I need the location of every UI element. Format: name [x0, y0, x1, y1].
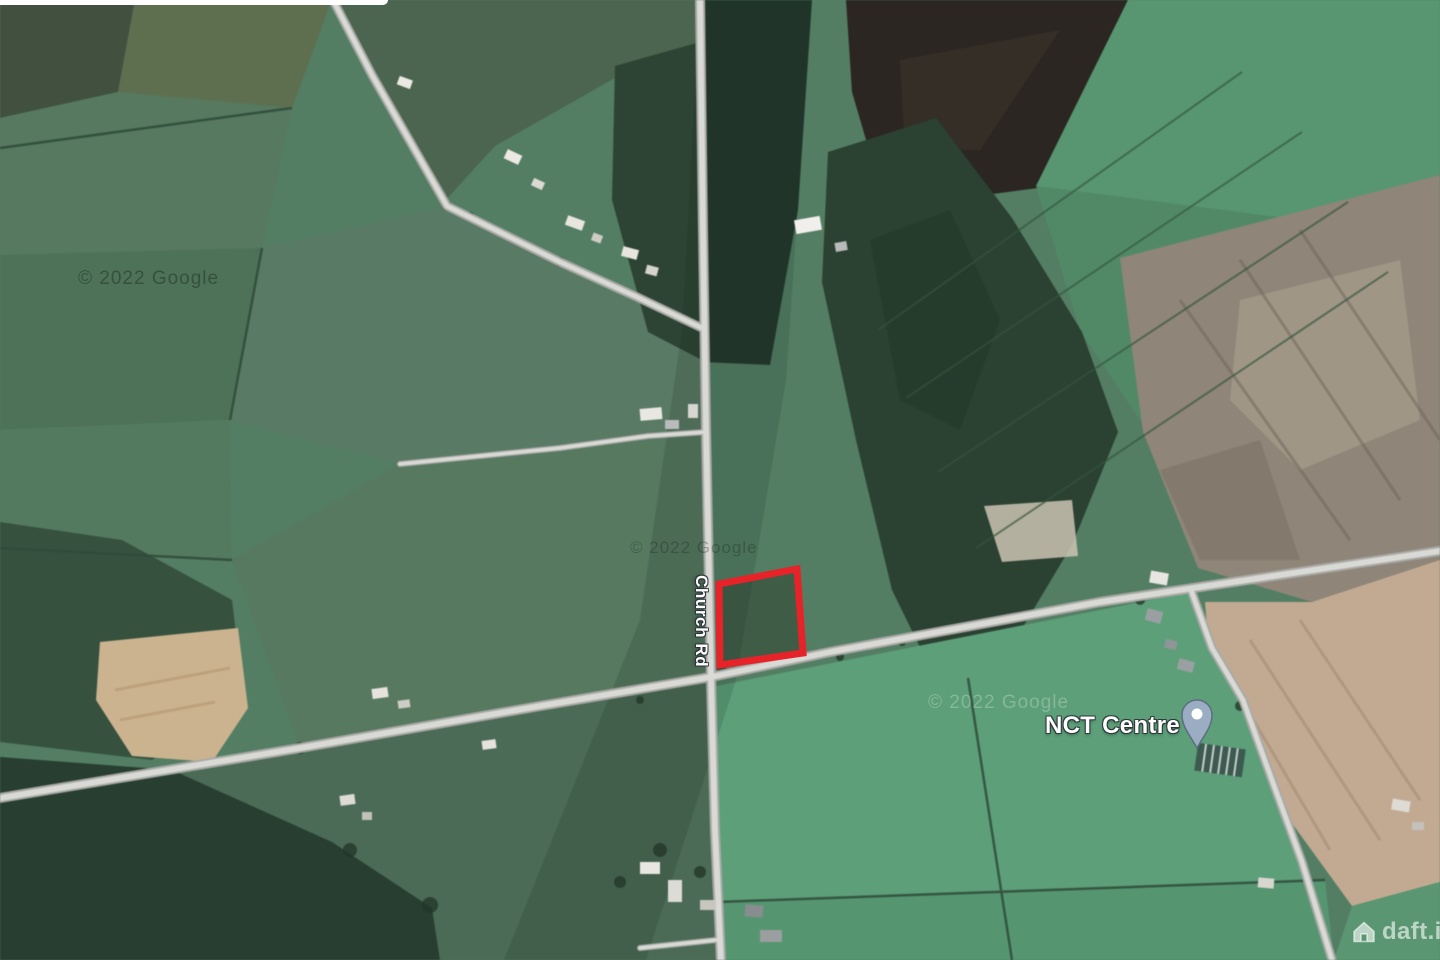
daft-ie-logo-text: daft.ie: [1382, 918, 1440, 946]
map-pin-icon[interactable]: [1182, 700, 1212, 748]
top-edge-card-artifact: [0, 0, 388, 5]
annotation-canvas: [0, 0, 1440, 960]
poi-label-nct-centre: NCT Centre: [1000, 712, 1180, 740]
road-label-text: Church Rd: [692, 575, 711, 667]
road-label-church-rd: Church Rd: [691, 575, 711, 667]
house-icon: [1352, 921, 1376, 943]
satellite-map-viewport[interactable]: Church Rd NCT Centre © 2022 Google © 202…: [0, 0, 1440, 960]
poi-label-text: NCT Centre: [1045, 712, 1180, 739]
daft-ie-logo: daft.ie: [1352, 918, 1440, 946]
